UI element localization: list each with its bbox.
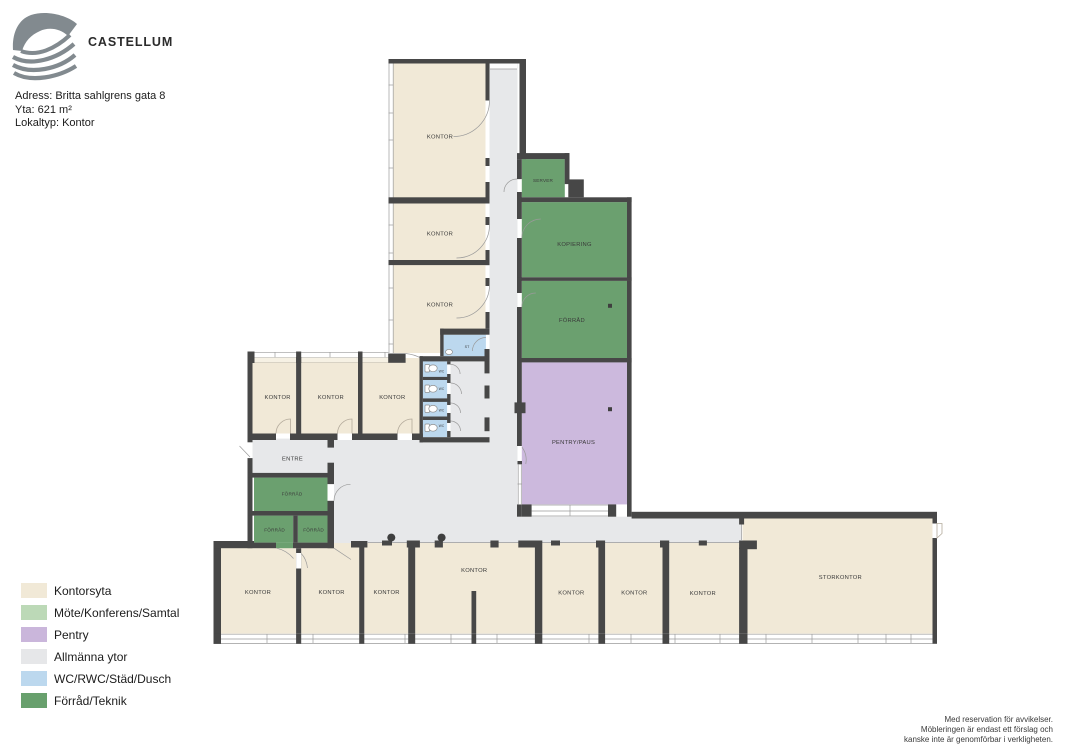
svg-text:ST: ST (465, 345, 471, 349)
svg-text:KONTOR: KONTOR (461, 568, 487, 574)
svg-text:KONTOR: KONTOR (373, 590, 399, 596)
svg-text:WC: WC (439, 409, 445, 413)
svg-text:KONTOR: KONTOR (264, 395, 290, 401)
svg-text:KONTOR: KONTOR (427, 135, 453, 141)
svg-text:KONTOR: KONTOR (318, 395, 344, 401)
svg-text:KONTOR: KONTOR (379, 395, 405, 401)
svg-text:KONTOR: KONTOR (558, 590, 584, 596)
svg-text:WC: WC (439, 424, 445, 428)
svg-text:ENTRE: ENTRE (282, 457, 303, 463)
svg-text:FÖRRÅD: FÖRRÅD (282, 491, 303, 497)
svg-text:FÖRRÅD: FÖRRÅD (559, 317, 585, 324)
svg-text:KONTOR: KONTOR (427, 231, 453, 237)
svg-text:WC: WC (439, 387, 445, 391)
svg-text:KONTOR: KONTOR (318, 590, 344, 596)
svg-text:KONTOR: KONTOR (245, 590, 271, 596)
svg-text:KONTOR: KONTOR (621, 590, 647, 596)
svg-text:KONTOR: KONTOR (690, 591, 716, 597)
svg-text:FÖRRÅD: FÖRRÅD (264, 526, 285, 532)
svg-text:PENTRY/PAUS: PENTRY/PAUS (552, 440, 595, 446)
svg-text:WC: WC (439, 369, 445, 373)
svg-text:SERVER: SERVER (533, 178, 554, 183)
svg-text:KONTOR: KONTOR (427, 302, 453, 308)
svg-text:KOPIERING: KOPIERING (557, 242, 592, 248)
svg-text:FÖRRÅD: FÖRRÅD (303, 526, 324, 532)
svg-text:STORKONTOR: STORKONTOR (819, 575, 862, 581)
